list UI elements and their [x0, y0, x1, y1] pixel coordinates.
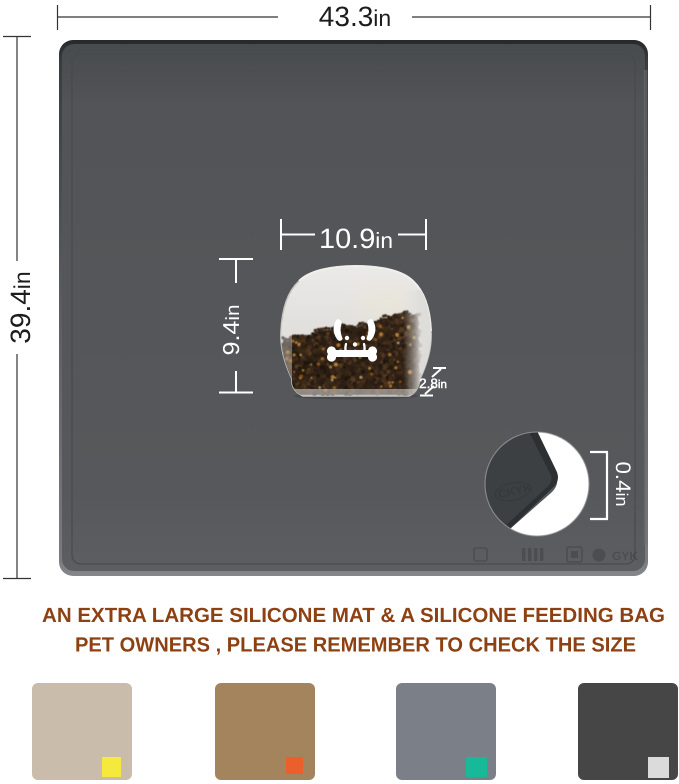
svg-text:AN EXTRA LARGE SILICONE MAT &: AN EXTRA LARGE SILICONE MAT & A SILICONE… — [42, 604, 665, 627]
svg-text:10.9in: 10.9in — [319, 223, 393, 254]
svg-text:39.4in: 39.4in — [5, 271, 36, 343]
svg-text:2.8in: 2.8in — [419, 376, 447, 391]
svg-text:GYK: GYK — [612, 549, 638, 563]
svg-text:43.3in: 43.3in — [319, 1, 391, 32]
svg-text:PET OWNERS , PLEASE REMEMBER T: PET OWNERS , PLEASE REMEMBER TO CHECK TH… — [75, 634, 636, 657]
svg-text:0.4in: 0.4in — [611, 462, 634, 507]
